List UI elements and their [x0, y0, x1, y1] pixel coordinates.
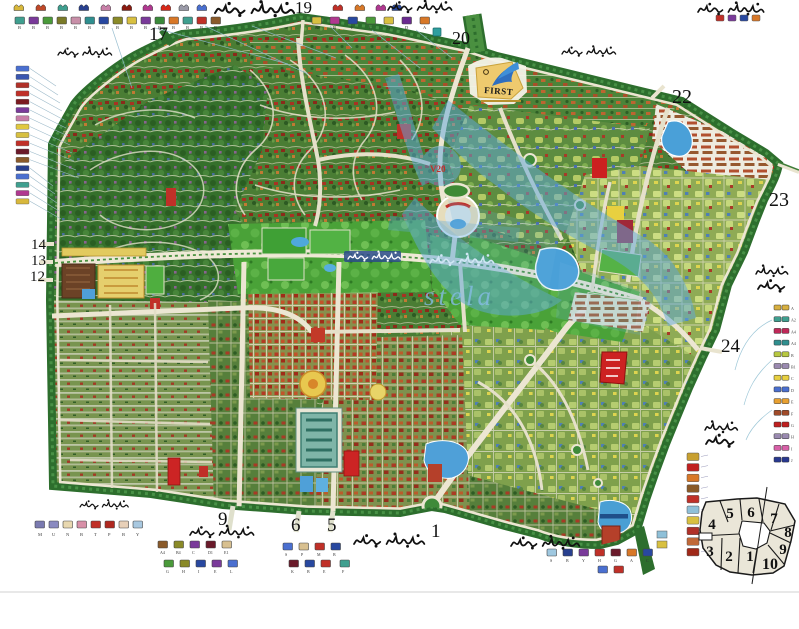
svg-text:H: H	[182, 569, 185, 574]
svg-text:8: 8	[784, 525, 792, 541]
svg-text:D1: D1	[208, 550, 213, 555]
svg-text:B: B	[307, 569, 310, 574]
svg-text:B4: B4	[176, 550, 181, 555]
svg-text:V20: V20	[430, 164, 446, 174]
svg-text:T: T	[94, 532, 97, 537]
svg-text:K: K	[291, 569, 294, 574]
svg-text:B: B	[333, 25, 336, 30]
svg-text:C: C	[369, 25, 372, 30]
svg-text:C: C	[192, 550, 195, 555]
svg-text:A4: A4	[160, 550, 165, 555]
svg-text:19: 19	[295, 0, 312, 17]
svg-text:A: A	[791, 306, 794, 311]
svg-text:20: 20	[452, 28, 470, 48]
svg-text:E: E	[315, 25, 318, 30]
svg-text:G: G	[791, 423, 794, 428]
svg-text:FIRST: FIRST	[484, 85, 514, 97]
svg-text:4: 4	[708, 517, 716, 533]
svg-text:5: 5	[726, 506, 734, 522]
svg-text:6: 6	[291, 515, 301, 536]
svg-text:G: G	[166, 569, 169, 574]
svg-text:12: 12	[30, 269, 45, 285]
svg-text:B: B	[186, 25, 189, 30]
svg-text:B: B	[172, 25, 175, 30]
svg-text:5: 5	[327, 515, 337, 536]
svg-text:B: B	[791, 353, 794, 358]
svg-text:1: 1	[746, 549, 754, 565]
svg-text:22: 22	[672, 86, 692, 108]
svg-text:B: B	[32, 25, 35, 30]
svg-text:17: 17	[149, 24, 168, 45]
svg-text:1: 1	[431, 521, 441, 542]
svg-text:B: B	[144, 25, 147, 30]
svg-text:B: B	[200, 25, 203, 30]
svg-text:B1: B1	[791, 365, 796, 370]
svg-text:B: B	[60, 25, 63, 30]
svg-text:G: G	[614, 558, 617, 563]
svg-text:24: 24	[721, 336, 741, 357]
svg-text:B: B	[333, 552, 336, 557]
svg-text:B: B	[566, 558, 569, 563]
svg-text:7: 7	[770, 511, 778, 527]
svg-text:6: 6	[747, 505, 755, 521]
svg-text:stela: stela	[424, 281, 495, 311]
svg-text:C: C	[646, 558, 649, 563]
svg-text:E1: E1	[224, 550, 228, 555]
svg-text:9: 9	[779, 542, 787, 558]
svg-text:B: B	[88, 25, 91, 30]
svg-text:B: B	[102, 25, 105, 30]
svg-text:2: 2	[725, 549, 733, 565]
svg-text:S: S	[285, 552, 287, 557]
svg-text:10: 10	[762, 556, 778, 573]
svg-text:M: M	[317, 552, 321, 557]
svg-text:M: M	[38, 532, 42, 537]
svg-text:H: H	[598, 558, 601, 563]
svg-text:B: B	[18, 25, 21, 30]
svg-text:A4: A4	[791, 329, 796, 334]
svg-text:S: S	[550, 558, 552, 563]
svg-text:C: C	[791, 376, 794, 381]
svg-text:B: B	[122, 532, 125, 537]
svg-text:B: B	[80, 532, 83, 537]
svg-text:D: D	[791, 388, 794, 393]
svg-text:B: B	[214, 25, 217, 30]
svg-text:B: B	[116, 25, 119, 30]
svg-text:3: 3	[706, 544, 714, 560]
svg-text:14: 14	[31, 237, 47, 253]
svg-text:B: B	[74, 25, 77, 30]
svg-text:B: B	[130, 25, 133, 30]
svg-text:Y: Y	[582, 558, 585, 563]
svg-text:23: 23	[769, 189, 789, 211]
svg-text:B: B	[46, 25, 49, 30]
svg-text:13: 13	[31, 253, 46, 269]
svg-text:A: A	[630, 558, 633, 563]
svg-text:9: 9	[218, 509, 228, 530]
svg-text:A2: A2	[791, 318, 796, 323]
svg-text:H: H	[791, 435, 794, 440]
svg-text:A4: A4	[791, 341, 796, 346]
